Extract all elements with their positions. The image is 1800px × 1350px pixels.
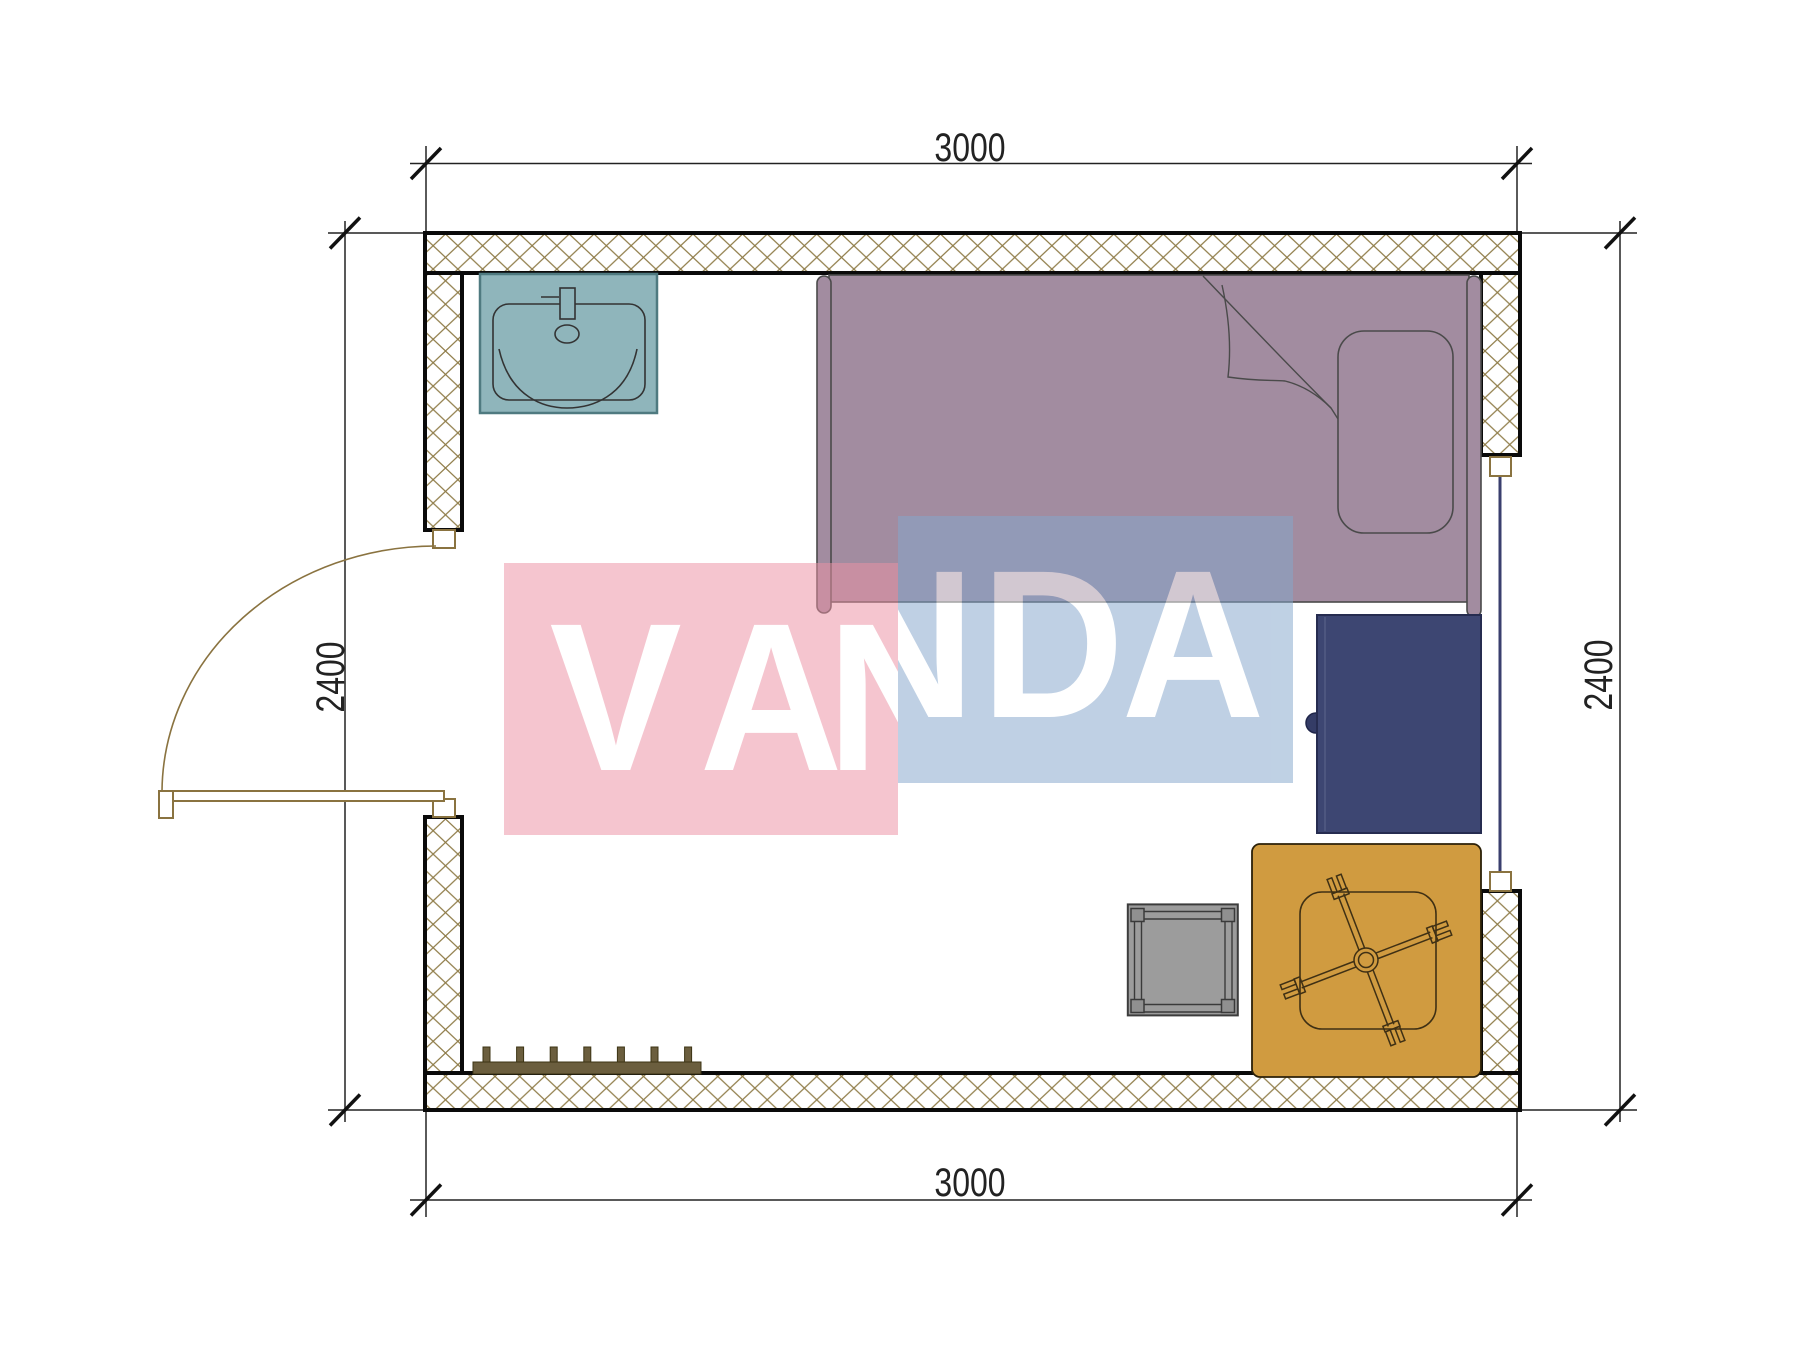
svg-text:V: V (550, 580, 682, 815)
svg-text:D: D (981, 527, 1124, 762)
svg-text:3000: 3000 (934, 125, 1005, 170)
svg-text:A: A (700, 580, 843, 815)
svg-text:2400: 2400 (1576, 639, 1621, 710)
svg-text:2400: 2400 (308, 641, 353, 712)
svg-text:A: A (1122, 527, 1265, 762)
svg-text:3000: 3000 (934, 1160, 1005, 1205)
